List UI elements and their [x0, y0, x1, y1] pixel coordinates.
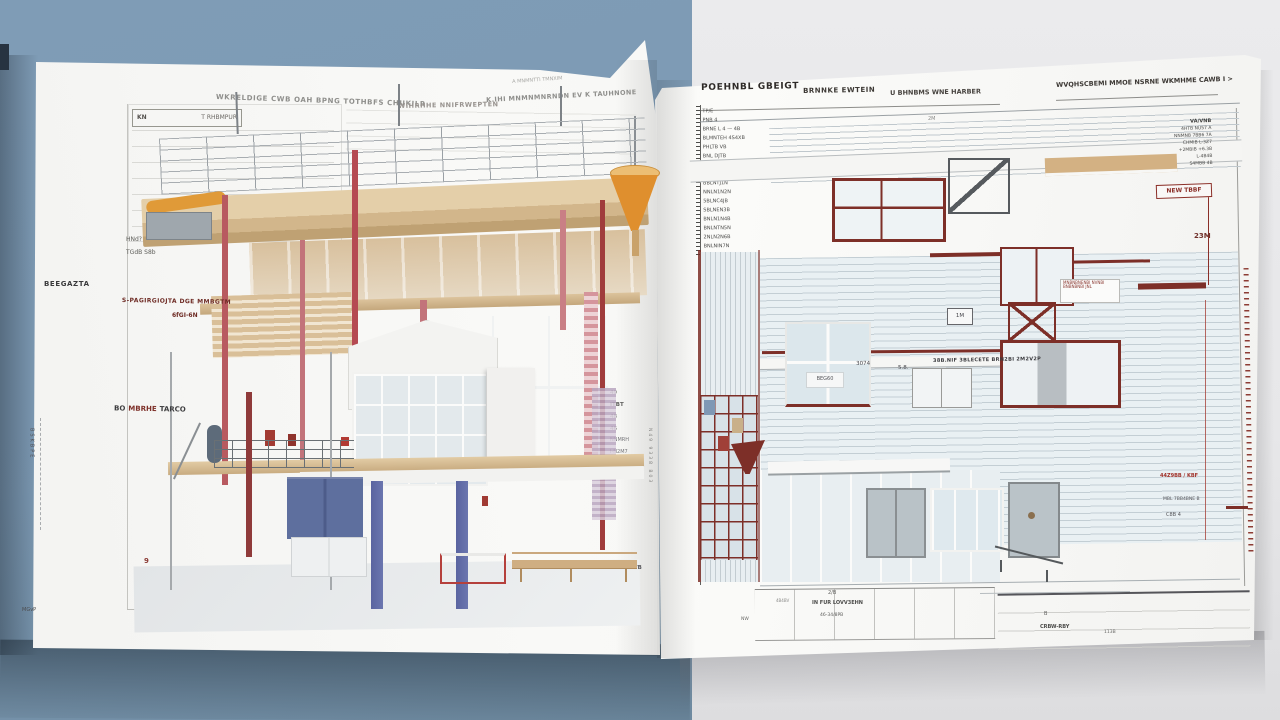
- scene: A MNMNTTI TMNXIM WKRELDIGE CWB OAH BPNG …: [0, 0, 1280, 720]
- left-edge-shadow: [0, 55, 38, 655]
- fold-vertical-text: N49 9338 B03: [646, 428, 651, 484]
- dim-2m-label: 2M: [928, 117, 936, 123]
- maroon-frame-left-b: [758, 250, 760, 582]
- small-label-2: TGdB S8b: [126, 250, 156, 257]
- glass-cell-blue: [704, 400, 715, 415]
- num-58-label: 5.8.: [898, 365, 909, 371]
- red-figure-dot: [482, 496, 488, 506]
- mid-label-red: MBRHE: [128, 406, 156, 414]
- dim-23m-label: 23M: [1194, 233, 1211, 241]
- titleblock-t4: 4B4BV: [776, 599, 789, 603]
- right-header-sub1: BRNNKE EWTEIN: [803, 87, 875, 96]
- small-label-1: HNd?: [126, 237, 142, 244]
- corner-number: 9: [144, 558, 149, 566]
- mezzanine-railing: [214, 440, 354, 468]
- pink-column-2: [300, 240, 305, 470]
- new-roof-label: NEW TBBF: [1166, 187, 1201, 195]
- mid-label-suffix: TARCO: [160, 406, 186, 414]
- scaffold-x-brace: [1008, 302, 1056, 342]
- titleblock-r2: CRBW-RBY: [1040, 625, 1069, 631]
- gray-post-1: [170, 352, 172, 590]
- white-cabinet: [291, 537, 367, 577]
- margin-bottom-label: MGvP: [22, 608, 36, 614]
- wood-bench-rail: [512, 552, 637, 554]
- red-kbf-label: 44Z9BB / KBF: [1160, 474, 1198, 480]
- boxed-1m-label: 1M: [956, 313, 964, 319]
- titleblock-right: [998, 590, 1251, 652]
- titleblock-t1: 2/B: [828, 591, 836, 597]
- blue-cabinet: [287, 477, 363, 539]
- schedule-row: BNLNIN7N: [704, 242, 790, 252]
- red-column-lower: [246, 392, 252, 557]
- mid-label-prefix: BO: [114, 405, 125, 413]
- corner-dark-sliver: [0, 44, 9, 70]
- legend-col2: T RHBMPUR: [201, 115, 237, 122]
- funnel-stem: [632, 230, 639, 256]
- fold-annotation: ITBT: [610, 402, 652, 408]
- num-3074-label: 3074: [856, 361, 870, 367]
- door-porthole: [1028, 512, 1035, 519]
- level-row: S4MBB 4B: [1189, 160, 1212, 168]
- titleblock-r1: B: [1044, 612, 1047, 618]
- titleblock-t3: 46-34/8PB: [820, 614, 843, 619]
- red-dim-line-2: [1205, 300, 1206, 540]
- small-white-boxes: [912, 368, 972, 408]
- legend-box: KN T RHBMPUR: [132, 109, 242, 127]
- ground-floor-plane: [134, 559, 641, 632]
- note1-label: MBL 7BB4BNE B: [1163, 498, 1200, 503]
- right-header-bold: POEHNBL GBEIGT: [701, 82, 799, 94]
- red-bracket-bar: [1226, 506, 1248, 509]
- new-roof-label-box: NEW TBBF: [1156, 183, 1212, 199]
- deck-equipment-box: [146, 212, 212, 240]
- glass-cell-red: [718, 436, 729, 451]
- glass-cell-tan: [732, 418, 743, 433]
- single-door: [1008, 482, 1060, 558]
- deck-pole-3: [560, 86, 562, 126]
- blue-pier-1: [371, 481, 383, 609]
- red-label-line2: 6fGI-6N: [172, 313, 198, 320]
- wood-slat-wall: [211, 292, 353, 358]
- titleblock-t5: NW: [741, 618, 749, 623]
- fold-annotation: 49: [610, 390, 652, 396]
- red-table: [440, 553, 506, 584]
- pink-column-5: [560, 210, 566, 330]
- maroon-opening: [1000, 340, 1121, 408]
- legend-col1: KN: [137, 115, 147, 122]
- bench-post-3: [625, 568, 627, 582]
- wood-bench: [512, 560, 637, 569]
- note2-label: C8B 4: [1166, 513, 1181, 519]
- stair-structure: [948, 158, 1010, 214]
- deck-pole-2: [398, 84, 400, 126]
- handrail-post-2: [1046, 570, 1048, 582]
- beg60-box: BEG60: [806, 372, 844, 388]
- margin-dash-line: [40, 418, 41, 530]
- blue-pier-2: [456, 481, 468, 609]
- titleblock-t2: IN FUR LOVV3EHN: [812, 601, 863, 607]
- bench-post-2: [570, 568, 572, 582]
- margin-vertical-label: BSKBPE: [28, 428, 34, 459]
- beg60-label: BEG60: [817, 377, 834, 383]
- entry-side-window: [930, 488, 1004, 552]
- handrail-post-1: [1000, 560, 1002, 572]
- titleblock-left: [755, 587, 995, 641]
- mid-label-row: BO MBRHE TARCO: [114, 405, 186, 414]
- stained-glass-grid: [700, 395, 758, 560]
- double-door: [866, 488, 926, 558]
- left-frame-vline: [127, 104, 128, 610]
- callout-line2: BNBNBNBI JNL: [1063, 285, 1117, 289]
- dark-red-bar: [1138, 282, 1206, 289]
- callout-box: MNBNBNENBI NVNBI BNBNBNBI JNL: [1060, 279, 1120, 303]
- bench-post-1: [520, 568, 522, 582]
- maroon-window-cluster: [832, 178, 946, 242]
- dim-line-vertical: [1208, 197, 1209, 285]
- boxed-1m: 1M: [947, 308, 973, 325]
- fold-annotation: 48: [610, 414, 652, 420]
- titleblock-r3: 113B: [1104, 631, 1116, 636]
- left-margin-label: BEEGAZTA: [44, 281, 90, 289]
